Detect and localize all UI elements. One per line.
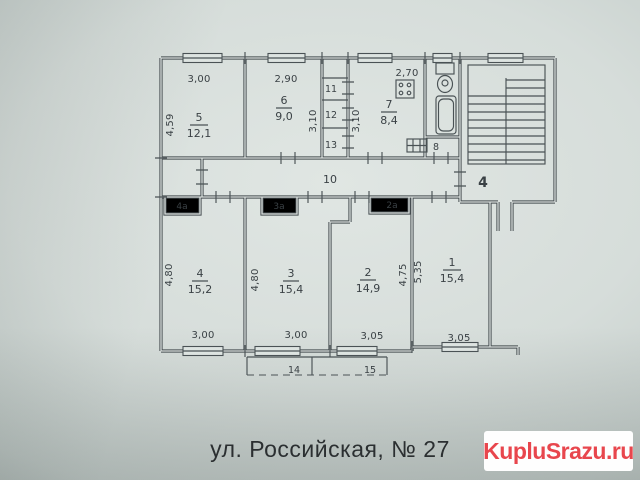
watermark-text: KupluSrazu.ru — [483, 438, 634, 465]
stairwell-4-label: 4 — [478, 175, 488, 191]
floor-plan-drawing: 5 12,1 6 9,0 7 8,4 4 15,2 3 15,4 2 14,9 … — [0, 0, 640, 480]
watermark-badge: KupluSrazu.ru — [484, 431, 633, 471]
room-13-label: 13 — [325, 140, 337, 151]
stove-icon — [396, 80, 414, 98]
balcony-15-label: 15 — [364, 365, 376, 376]
balcony-14-label: 14 — [288, 365, 300, 376]
staircase — [468, 65, 545, 164]
room-2-area: 14,9 — [356, 282, 381, 295]
scanned-floor-plan-photo: 5 12,1 6 9,0 7 8,4 4 15,2 3 15,4 2 14,9 … — [0, 0, 640, 480]
room-12-label: 12 — [325, 110, 337, 121]
room-1-area: 15,4 — [440, 272, 465, 285]
dim-left-room1: 5,35 — [413, 260, 424, 283]
room-7-area: 8,4 — [380, 114, 398, 127]
room-1-number: 1 — [449, 256, 456, 269]
dim-bottom-room3: 3,00 — [284, 330, 307, 341]
dim-bottom-room1: 3,05 — [447, 333, 470, 344]
bathtub-icon — [436, 96, 456, 134]
dim-side-room7: 3,10 — [351, 109, 362, 132]
room-5-number: 5 — [196, 111, 203, 124]
room-6-number: 6 — [281, 94, 288, 107]
room-2-number: 2 — [365, 266, 372, 279]
room-6-area: 9,0 — [275, 110, 293, 123]
dim-top-room5: 3,00 — [187, 74, 210, 85]
room-3-number: 3 — [288, 267, 295, 280]
closet-2a-label: 2а — [386, 201, 397, 211]
room-4-number: 4 — [197, 267, 204, 280]
room-label-bars — [190, 108, 461, 281]
room-7-number: 7 — [386, 98, 393, 111]
windows — [183, 54, 523, 356]
dim-bottom-room2: 3,05 — [360, 331, 383, 342]
closet-4a-label: 4а — [176, 202, 187, 212]
hall-10-label: 10 — [323, 173, 337, 186]
dim-bottom-room4: 3,00 — [191, 330, 214, 341]
dim-left-room5: 4,59 — [165, 113, 176, 136]
room-3-area: 15,4 — [279, 283, 304, 296]
dim-top-room7: 2,70 — [395, 68, 418, 79]
room-8-label: 8 — [433, 142, 439, 153]
address-caption: ул. Российская, № 27 — [160, 436, 500, 470]
main-walls — [161, 58, 555, 355]
dim-right-room2: 4,75 — [398, 263, 409, 286]
room-11-label: 11 — [325, 84, 337, 95]
dim-top-room6: 2,90 — [274, 74, 297, 85]
dim-left-room3: 4,80 — [250, 268, 261, 291]
dim-side-room6: 3,10 — [308, 109, 319, 132]
toilet-icon — [436, 63, 454, 93]
room-5-area: 12,1 — [187, 127, 212, 140]
dim-left-room4: 4,80 — [164, 263, 175, 286]
room-4-area: 15,2 — [188, 283, 213, 296]
closet-3a-label: 3а — [273, 202, 284, 212]
